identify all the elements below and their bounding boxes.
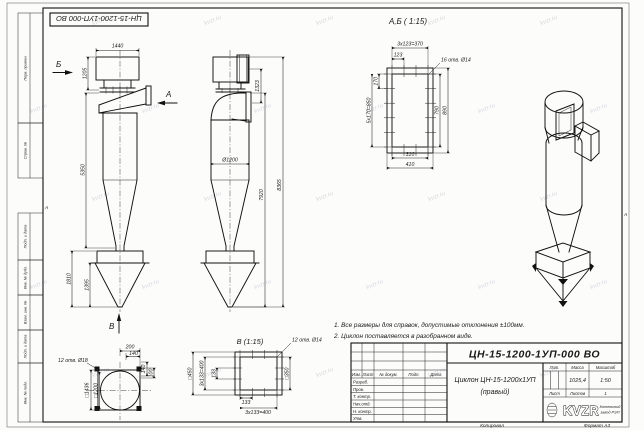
dim-8365: 8365 [277,179,283,191]
note-line-1: 1. Все размеры для справок, допустимые о… [334,321,525,329]
mass-label: Масса [571,365,584,370]
dim-1395: 1395 [85,279,91,291]
holes-16-d14: 16 отв. Ø14 [441,58,471,64]
dim-5350: 5350 [81,164,87,176]
col-izm: Изм. [352,372,361,377]
dim-sq1436: □1436 [85,383,91,398]
dim-sq1200: □1200 [94,383,100,398]
dim-7920: 7920 [259,189,265,201]
dim-200: 200 [125,345,135,351]
margin-label-vzam-inv: Взам. инв. № [24,301,28,324]
front-view: Б А В 1440 1205 5350 1810 1395 [53,44,177,334]
dim-410: 410 [406,162,415,168]
mass-value: 1025,4 [569,378,586,384]
margin-label-perv-primen: Перв. примен. [24,55,28,80]
col-data: Дата [429,372,442,377]
section-ab-view: А,Б ( 1:15) 3х123=370 123 16 отв. Ø14 17… [367,17,471,170]
lit-label: Лит. [549,365,560,370]
format-label: Формат А3 [584,423,611,429]
dim-sq350: □350 [285,367,291,379]
dim-310: 310 [406,152,415,158]
dim-790: 790 [435,106,441,115]
zone-letter-right: А [623,212,627,218]
view-v: В (1:15) 12 отв. Ø14 □450 3х133=400 133 … [188,337,322,416]
row-prov: Пров. [353,387,364,392]
top-stamp-doc-number: ЦН-15-1200-1УП-000 ВО [56,14,142,23]
copied-label: Копировал [480,423,504,429]
dim-3x123: 3х123=370 [397,42,423,48]
org-line2: завод РЭП [600,411,620,415]
scale-value: 1:50 [600,378,612,384]
title-block: Изм. Лист № докум. Подп. Дата Разраб. Пр… [351,343,622,422]
dim-1323: 1323 [255,80,261,92]
scale-label: Масштаб [596,365,616,370]
row-utv: Утв. [353,416,363,421]
drawing-linework: Перв. примен. Справ. № Подп. и дата Инв.… [0,0,644,430]
col-doc: № докум. [379,372,397,377]
dim-3x133-bottom: 3х133=400 [245,410,271,416]
zone-letter-left: А [44,205,48,211]
doc-number: ЦН-15-1200-1УП-000 ВО [469,349,600,361]
dim-3x133-left: 3х133=400 [200,360,206,386]
col-list: Лист [362,372,374,377]
sheet-label: Лист [548,391,560,396]
margin-label-sprav-n: Справ. № [24,142,28,159]
dim-1205: 1205 [83,68,89,80]
drawing-name-line1: Циклон ЦН-15-1200х1УП [454,377,536,384]
dim-sq450: □450 [188,367,194,379]
sheets-value: 1 [604,391,606,396]
bottom-flange-view: 12 отв. Ø18 200 140 140 100 □1436 □1200 [58,345,156,421]
section-ab-title: А,Б ( 1:15) [388,17,427,26]
sheets-label: Листов [569,391,586,396]
view-arrow-b-label: Б [56,60,61,69]
drawing-sheet: kvzr.rukvzr.rukvzr.rukvzr.rukvzr.rukvzr.… [0,0,644,430]
side-view: 1323 Ø1200 7920 8365 [201,50,285,312]
view-arrow-v-label: В [109,322,115,331]
holes-12-d18: 12 отв. Ø18 [58,358,88,364]
margin-label-inv-dubl: Инв. № дубл. [24,266,28,289]
dim-100: 100 [149,369,155,378]
col-podp: Подп. [408,372,419,377]
dim-5x170: 5х170=850 [367,97,373,123]
frame: Перв. примен. Справ. № Подп. и дата Инв.… [7,3,629,429]
view-arrow-a-label: А [165,90,171,99]
dim-140a: 140 [129,351,138,357]
margin-label-podp-data-2: Подп. и дата [24,335,28,359]
dim-890: 890 [443,106,449,115]
margin-label-podp-data-1: Подп. и дата [24,225,28,249]
org-line1: Котельный [600,405,622,409]
dim-170: 170 [374,77,380,86]
dim-123: 123 [394,53,403,59]
dim-dia-1200: Ø1200 [221,158,238,164]
view-v-title: В (1:15) [237,337,264,346]
note-line-2: 2. Циклон поставляется в разобранном вид… [333,332,473,340]
holes-12-d14: 12 отв. Ø14 [292,338,322,344]
row-razrab: Разраб. [353,380,368,385]
logo-text: KVZR [563,404,599,418]
dim-133-left: 133 [212,369,218,378]
isometric-view [532,91,599,307]
notes: 1. Все размеры для справок, допустимые о… [333,321,525,340]
row-nkontr: Н. контр. [353,409,372,414]
row-nachotd: Нач.отд. [353,402,371,407]
dim-1810: 1810 [67,273,73,285]
margin-label-inv-podl: Инв. № подл. [24,381,28,405]
drawing-name-line2: (правый) [481,388,510,396]
dim-140b: 140 [141,365,147,374]
dim-133-bottom: 133 [242,400,251,406]
org-logo: KVZR [547,403,599,418]
row-tkontr: Т. контр. [353,394,371,399]
dim-1440: 1440 [112,44,124,50]
